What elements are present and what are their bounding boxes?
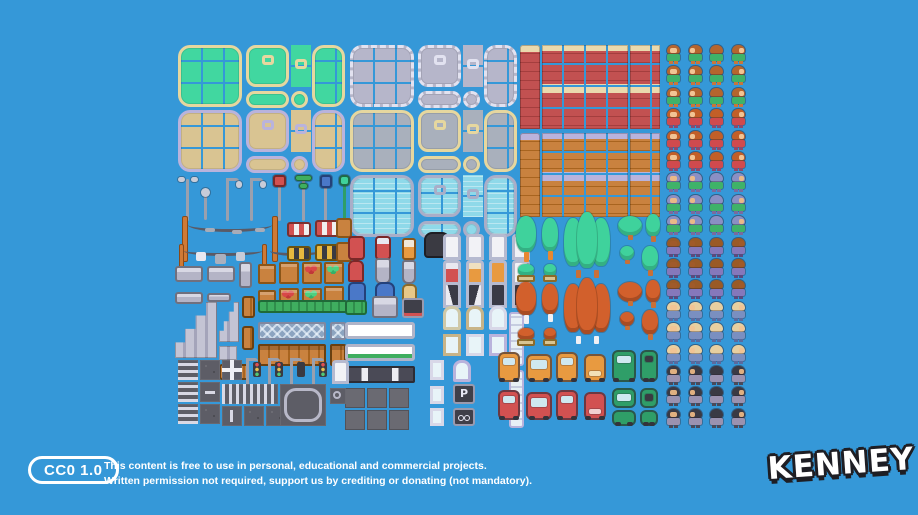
character-body [667,161,680,168]
barrier-yellow-black [287,246,311,261]
character-legs [691,61,695,64]
character-body [710,54,723,61]
character-boy-green-shirt [688,66,703,85]
tree-trunk [548,314,553,322]
character-hair [710,195,723,204]
car-wheel-icon [571,416,577,420]
character-man-dark-skin [709,238,724,257]
character-body [689,375,702,382]
license-line-1: This content is free to use in personal,… [104,459,532,474]
character-face [739,112,744,117]
license-line-2: Written permission not required, support… [104,474,532,489]
character-face [670,219,677,224]
character-body [710,97,723,104]
traffic-light [288,358,306,384]
metal-shelf [207,293,231,302]
character-man-red-headband [688,387,703,406]
character-body [710,75,723,82]
character-body [732,375,745,382]
character-body [667,247,680,254]
character-body [732,97,745,104]
character-body [667,140,680,147]
pavement-tile [367,410,387,430]
car-windshield [503,358,515,365]
tree-crown [542,218,558,251]
character-body [667,396,680,403]
tree-slim-autumn [646,280,660,308]
character-boy-green-shirt [688,88,703,107]
character-body [732,289,745,296]
red-brick-edge [520,45,540,129]
tree-crown [620,312,634,326]
character-hair [710,323,723,332]
character-body [732,54,745,61]
character-man-blue-overalls [709,345,724,364]
green-arrow-sign-icon [295,175,312,181]
character-boy-green-shirt [709,66,724,85]
character-legs [712,275,716,278]
pavement-tile-fill [463,110,483,152]
wooden-crate [258,264,276,284]
character-legs [712,232,716,235]
car-wheel-icon [599,416,605,420]
traffic-light-pole [246,358,249,384]
character-face [670,112,677,117]
stone-tile-fill [463,45,483,87]
character-boy-green-shirt [709,88,724,107]
character-legs [734,425,738,428]
character-lady-blue-hair [688,195,703,214]
car-wheel-icon [649,378,655,382]
character-hair [710,66,723,75]
character-legs [669,82,673,85]
stone-step [219,346,237,360]
character-legs [734,168,738,171]
window-small-white [430,408,444,426]
road-tile [200,404,220,424]
character-man-dark-skin [666,280,681,299]
pavement-tile-large [350,110,414,172]
window-arched-white [489,306,507,330]
character-face [690,69,695,74]
character-man-dark-skin [688,259,703,278]
character-man-red-headband [709,366,724,385]
blue-sign-icon [320,175,332,188]
character-man-dark-skin [731,259,746,278]
bicycle-wheel-icon [464,415,470,421]
character-legs [669,361,673,364]
sand-tile-tall [312,110,345,172]
tree-slim-green [642,246,658,276]
water-tile-tall [484,175,517,237]
sand-tile-mark-icon [262,120,274,130]
character-body [667,268,680,275]
car-red-back [584,392,606,420]
car-windshield [617,394,631,401]
character-girl-red-shirt [731,152,746,171]
car-wheel-icon [529,378,535,382]
storefront-window [345,322,415,339]
car-wheel-icon [543,416,549,420]
character-face [670,348,677,353]
character-man-blue-overalls [666,323,681,342]
character-face [670,155,677,160]
character-body [689,268,702,275]
character-boy-green-shirt [709,45,724,64]
tree-planter-autumn [516,328,536,346]
character-man-dark-skin [709,259,724,278]
character-face [690,326,695,331]
character-legs [712,339,716,342]
traffic-light-icon [297,362,305,377]
character-man-dark-skin [666,259,681,278]
tree-bush-small-green [620,246,634,264]
wooden-crate [279,262,299,284]
character-hair [710,409,723,418]
character-lady-blue-hair [688,173,703,192]
character-face [690,91,695,96]
stone-tile-round [463,91,480,108]
lamp-pole [186,179,189,221]
character-legs [691,425,695,428]
character-girl-red-shirt [666,109,681,128]
metal-bench [207,266,235,282]
character-legs [669,296,673,299]
character-lady-blue-hair [666,173,681,192]
character-legs [734,403,738,406]
character-girl-red-shirt [666,152,681,171]
tree-trunk [648,334,653,340]
character-legs [669,339,673,342]
character-legs [691,339,695,342]
tree-crown [516,282,536,315]
character-man-blue-overalls [731,345,746,364]
character-body [689,54,702,61]
character-body [667,182,680,189]
character-man-blue-overalls [731,323,746,342]
sand-tile-pill [246,156,289,173]
grass-tile-tall [312,45,345,107]
character-legs [691,232,695,235]
pavement-tile-mark-icon [434,120,446,130]
barrier-stand [336,218,352,238]
character-body [732,354,745,361]
road-tile-cross [222,360,242,380]
window-square-white [466,334,484,356]
tree-bush-green [618,216,642,240]
character-man-red-headband [666,409,681,428]
character-face [690,390,695,395]
stone-tile-pill [418,91,461,108]
tree-planter-autumn [542,328,558,346]
character-body [667,311,680,318]
character-body [667,354,680,361]
character-legs [669,318,673,321]
car-windshield [503,396,515,403]
pavement-tile [389,410,409,430]
grass-tile-fill [291,45,311,87]
character-face [670,262,677,267]
stone-tile-mark-icon [434,55,446,65]
character-boy-green-shirt [688,45,703,64]
car-windshield [561,358,573,365]
character-legs [691,147,695,150]
character-body [667,375,680,382]
car-orange-front [556,352,578,382]
grass-tile-round [291,91,308,108]
tree-crown [542,284,558,314]
character-lady-blue-hair [666,216,681,235]
street-lamp-double [178,175,198,221]
fire-hydrant [348,260,364,282]
green-sign-icon [299,183,308,189]
car-windshield [531,398,547,407]
green-sofa [345,300,367,315]
character-legs [712,254,716,257]
character-legs [712,318,716,321]
character-man-blue-overalls [688,345,703,364]
tree-trunk [625,260,630,264]
character-legs [712,361,716,364]
sand-tile-round [291,156,308,173]
character-body [710,375,723,382]
character-legs [691,296,695,299]
character-legs [712,147,716,150]
lamp-head-icon [236,181,242,188]
character-hair [710,238,723,247]
character-face [690,369,695,374]
car-wheel-icon [499,416,505,420]
character-body [710,396,723,403]
character-hair [710,88,723,97]
tree-planter-green [542,264,558,282]
character-face [690,412,695,417]
character-legs [712,211,716,214]
character-body [667,289,680,296]
character-legs [669,275,673,278]
orange-brick-wall-narrow [630,133,660,217]
character-legs [734,339,738,342]
character-legs [712,189,716,192]
character-body [710,311,723,318]
stone-stairs-large [175,302,217,358]
character-legs [691,125,695,128]
character-boy-green-shirt [666,45,681,64]
character-face [739,305,744,310]
car-wheel-icon [585,378,591,382]
lamp-globe-icon [201,188,210,197]
character-hair [710,152,723,161]
sign-post-blue [318,175,334,221]
sign-post-red [270,175,290,221]
character-face [670,241,677,246]
character-face [739,326,744,331]
character-body [732,182,745,189]
character-girl-red-shirt [688,109,703,128]
car-wheel-icon [571,378,577,382]
car-wheel-icon [513,378,519,382]
sand-tile-mark-icon [295,124,307,134]
traffic-light-pole [268,358,271,384]
door-white [489,234,507,260]
character-hair [710,302,723,311]
doorway-dark [489,282,507,308]
character-face [670,134,677,139]
crosswalk-tile [178,404,198,424]
character-legs [669,254,673,257]
car-wheel-icon [499,378,505,382]
character-hair [710,109,723,118]
car-wheel-icon [629,378,635,382]
license-text: This content is free to use in personal,… [104,459,532,488]
character-legs [669,211,673,214]
character-face [690,198,695,203]
car-wheel-icon [543,378,549,382]
chain-link-fence-post [330,322,346,340]
character-body [732,75,745,82]
character-hair [710,131,723,140]
character-legs [734,147,738,150]
character-body [732,396,745,403]
character-legs [669,125,673,128]
trash-can [375,258,391,284]
red-brick-wall [542,45,628,129]
character-body [667,204,680,211]
character-legs [712,61,716,64]
hanging-shirt-icon [196,252,206,261]
character-man-dark-skin [688,238,703,257]
character-face [670,48,677,53]
character-legs [734,232,738,235]
character-man-blue-overalls [666,345,681,364]
grass-tile-large [178,45,242,107]
character-girl-red-shirt [666,131,681,150]
character-face [670,91,677,96]
truck-green-bed [640,388,658,408]
hanging-pants-icon [215,254,226,264]
character-body [732,268,745,275]
stone-tile-mark-icon [467,59,479,69]
stone-stairs-small [219,302,239,342]
character-man-red-headband [688,366,703,385]
character-body [710,182,723,189]
character-lady-blue-hair [709,173,724,192]
barrier-red-white [287,222,311,237]
door-open [466,282,484,308]
character-man-blue-overalls [731,302,746,321]
character-legs [712,403,716,406]
character-lady-blue-hair [731,195,746,214]
tree-cluster-autumn [564,278,610,344]
character-legs [691,403,695,406]
metal-bench [175,266,203,282]
green-lamp-icon [339,175,350,186]
character-legs [734,211,738,214]
crosswalk-tile-horizontal [222,384,278,404]
red-sign-icon [273,175,286,187]
character-legs [734,275,738,278]
crosswalk-tile [178,382,198,402]
pavement-tile [389,388,409,408]
character-legs [691,318,695,321]
metal-table [175,292,203,304]
character-body [689,225,702,232]
tree-tall-green [516,216,536,262]
character-body [732,118,745,125]
pavement-tile [345,388,365,408]
tree-crown [642,310,658,334]
character-legs [734,382,738,385]
bicycle-sign-tile [453,408,475,426]
character-face [690,134,695,139]
character-face [739,91,744,96]
character-body [667,118,680,125]
stone-tile-tall [484,45,517,107]
tree-trunk [628,235,633,240]
car-red-front [556,390,578,420]
road-tile-corner [280,384,326,426]
license-badge-text: CC0 1.0 [44,462,103,479]
character-body [689,97,702,104]
tree-slim-autumn [642,310,658,340]
character-body [710,247,723,254]
car-orange-back [584,354,606,382]
character-body [667,332,680,339]
character-legs [712,104,716,107]
character-legs [734,189,738,192]
tree-trunk [594,336,599,344]
character-man-dark-skin [688,280,703,299]
car-wheel-icon [557,416,563,420]
car-windshield [531,360,547,369]
character-hair [710,345,723,354]
tree-trunk [651,302,656,308]
red-can [375,236,391,260]
character-boy-green-shirt [731,66,746,85]
street-lamp-ball [198,188,212,220]
character-face [739,48,744,53]
character-girl-red-shirt [688,131,703,150]
window-arched-cream [443,306,461,330]
character-body [732,247,745,254]
character-face [670,198,677,203]
character-legs [734,361,738,364]
character-legs [712,168,716,171]
character-man-red-headband [709,409,724,428]
grass-tile-pill [246,91,289,108]
pavement-tile [345,410,365,430]
storefront-window-green [345,344,415,361]
tree-trunk [548,251,553,260]
character-body [732,418,745,425]
tree-crown [618,282,642,302]
character-face [670,69,677,74]
character-legs [691,254,695,257]
traffic-light [244,358,262,384]
chain-link-fence [258,322,326,340]
character-man-dark-skin [731,280,746,299]
character-face [670,305,677,310]
lamp-head-icon [178,177,185,182]
character-body [689,396,702,403]
door-white [466,234,484,260]
traffic-light [310,358,328,384]
character-body [710,161,723,168]
character-legs [669,425,673,428]
character-legs [669,104,673,107]
character-face [739,262,744,267]
character-face [739,369,744,374]
